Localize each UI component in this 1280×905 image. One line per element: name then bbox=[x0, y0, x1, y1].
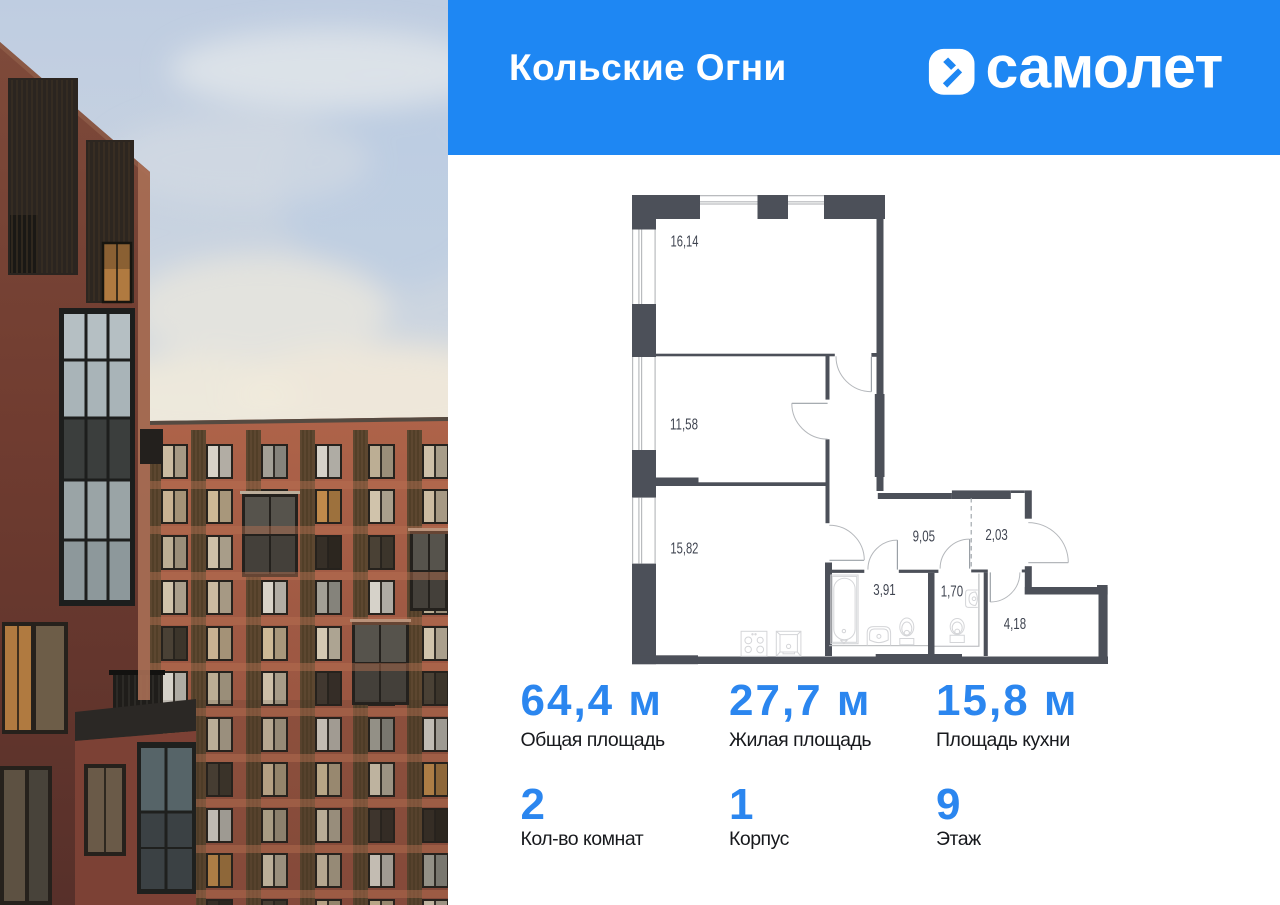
svg-text:самолет: самолет bbox=[986, 40, 1223, 101]
svg-text:15,82: 15,82 bbox=[670, 541, 698, 558]
svg-text:9,05: 9,05 bbox=[913, 529, 935, 546]
svg-text:4,18: 4,18 bbox=[1004, 616, 1026, 633]
svg-text:2,03: 2,03 bbox=[985, 527, 1007, 544]
svg-text:16,14: 16,14 bbox=[671, 234, 699, 251]
svg-text:11,58: 11,58 bbox=[670, 417, 698, 434]
svg-text:3,91: 3,91 bbox=[873, 582, 895, 599]
svg-text:1,70: 1,70 bbox=[941, 584, 964, 601]
